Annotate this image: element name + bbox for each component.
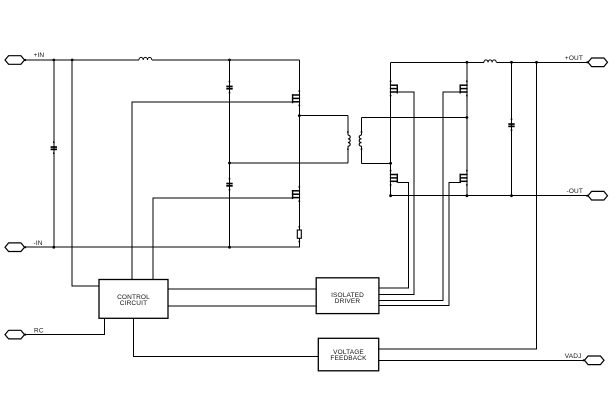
svg-text:RC: RC — [34, 327, 44, 334]
svg-text:+OUT: +OUT — [565, 55, 583, 62]
svg-text:CIRCUIT: CIRCUIT — [120, 300, 147, 307]
svg-text:-IN: -IN — [34, 240, 43, 247]
svg-text:FEEDBACK: FEEDBACK — [330, 355, 367, 362]
svg-text:+IN: +IN — [34, 52, 45, 59]
svg-text:-OUT: -OUT — [567, 188, 584, 195]
svg-text:VADJ: VADJ — [565, 353, 582, 360]
svg-text:DRIVER: DRIVER — [335, 298, 361, 305]
